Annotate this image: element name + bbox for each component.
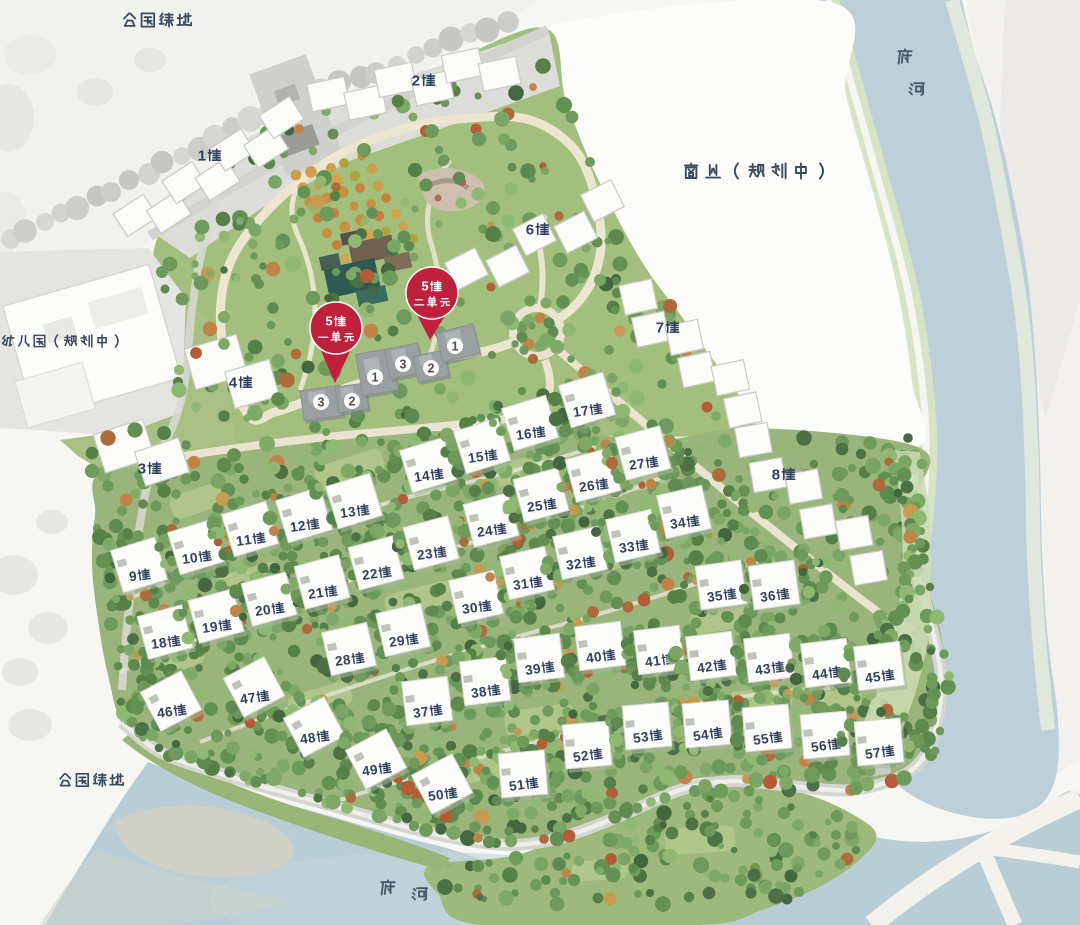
svg-text:2: 2 [412,72,420,89]
svg-text:3: 3 [138,460,146,477]
svg-text:6: 6 [526,221,534,238]
svg-text:4: 4 [229,374,238,391]
svg-text:1: 1 [198,147,206,164]
svg-text:2: 2 [349,395,356,409]
svg-text:8: 8 [772,466,780,483]
svg-text:1: 1 [372,371,379,385]
svg-text:1: 1 [452,340,459,354]
svg-text:7: 7 [656,319,664,336]
svg-text:2: 2 [428,362,435,376]
svg-text:5: 5 [325,314,332,329]
svg-text:3: 3 [318,396,325,410]
svg-text:3: 3 [400,358,407,372]
svg-text:5: 5 [421,279,428,294]
